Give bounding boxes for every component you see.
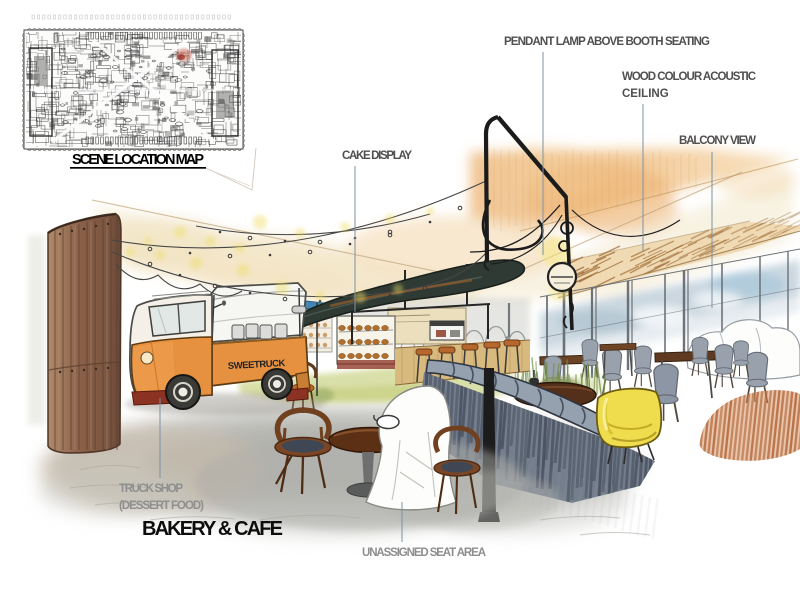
svg-text:UNASSIGNED SEAT AREA: UNASSIGNED SEAT AREA (362, 547, 486, 559)
svg-text:(DESSERT FOOD): (DESSERT FOOD) (119, 500, 204, 512)
svg-text:TRUCK SHOP: TRUCK SHOP (119, 483, 183, 495)
svg-text:CAKE DISPLAY: CAKE DISPLAY (342, 150, 412, 162)
svg-text:BAKERY & CAFE: BAKERY & CAFE (142, 518, 283, 540)
svg-text:WOOD COLOUR ACOUSTIC: WOOD COLOUR ACOUSTIC (622, 71, 756, 83)
svg-text:CEILING: CEILING (622, 88, 669, 100)
svg-text:SCENE LOCATION MAP: SCENE LOCATION MAP (72, 152, 204, 168)
svg-text:BALCONY VIEW: BALCONY VIEW (679, 135, 756, 147)
svg-text:PENDANT LAMP ABOVE BOOTH SEATI: PENDANT LAMP ABOVE BOOTH SEATING (504, 36, 710, 48)
